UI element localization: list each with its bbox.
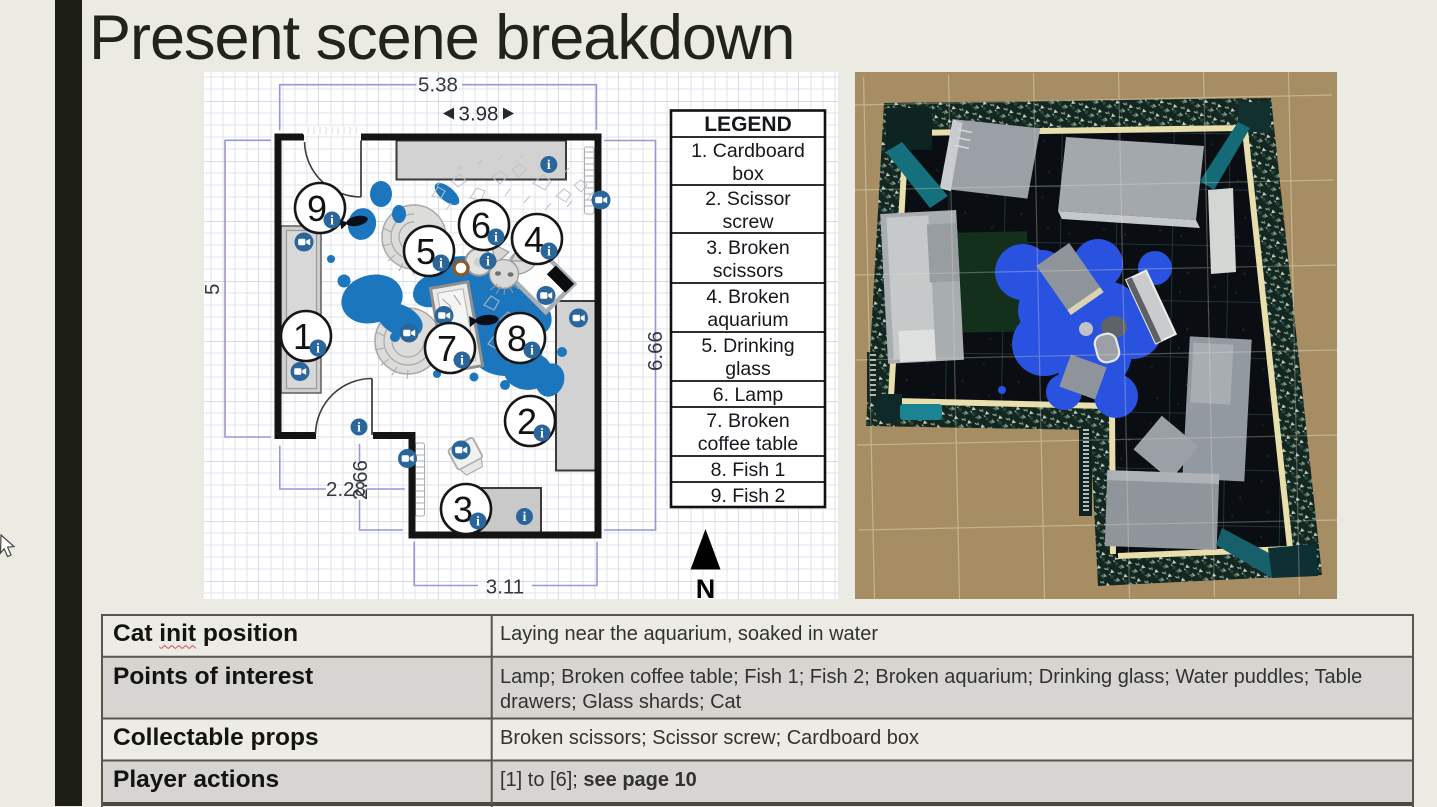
svg-text:4. Broken: 4. Broken	[706, 286, 789, 308]
svg-text:LEGEND: LEGEND	[704, 113, 792, 136]
svg-text:2. Scissor: 2. Scissor	[705, 188, 791, 210]
svg-text:8. Fish 1: 8. Fish 1	[711, 459, 786, 481]
svg-text:1. Cardboard: 1. Cardboard	[691, 140, 805, 162]
svg-text:3.98: 3.98	[459, 103, 499, 126]
svg-text:9. Fish 2: 9. Fish 2	[711, 485, 786, 507]
svg-text:6.66: 6.66	[644, 331, 667, 371]
svg-text:N: N	[696, 574, 716, 599]
svg-text:3.11: 3.11	[486, 576, 524, 599]
svg-text:screw: screw	[723, 211, 775, 233]
svg-text:6. Lamp: 6. Lamp	[713, 384, 784, 406]
svg-text:aquarium: aquarium	[707, 309, 788, 331]
svg-text:2.66: 2.66	[349, 460, 372, 500]
svg-text:3. Broken: 3. Broken	[706, 237, 789, 259]
svg-text:7. Broken: 7. Broken	[706, 410, 789, 432]
svg-text:5: 5	[204, 284, 224, 295]
svg-text:coffee table: coffee table	[698, 433, 798, 455]
svg-text:5.38: 5.38	[418, 74, 458, 97]
svg-text:5. Drinking: 5. Drinking	[701, 335, 794, 357]
svg-text:scissors: scissors	[713, 260, 784, 282]
svg-text:glass: glass	[725, 358, 771, 380]
svg-text:box: box	[732, 163, 764, 185]
